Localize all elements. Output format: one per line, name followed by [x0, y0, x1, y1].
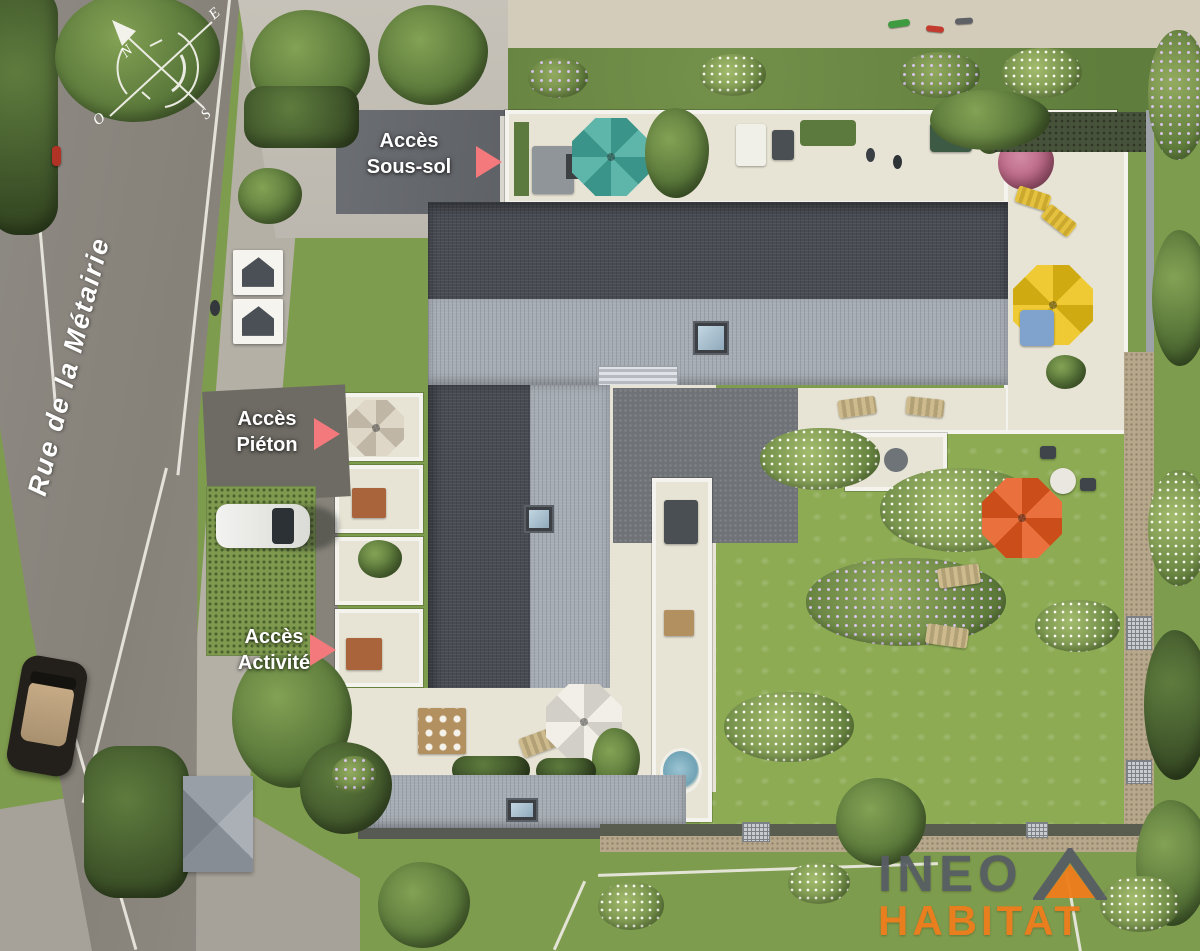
- wood-lounger-2: [905, 396, 945, 418]
- compass-east-label: E: [205, 6, 223, 24]
- garden-chair-1: [1040, 446, 1056, 459]
- road-cyclist: [52, 146, 61, 166]
- access-pedestrian-line2: Piéton: [215, 432, 319, 458]
- purple-bush-south: [332, 756, 376, 794]
- logo-ineo-text: INEO: [878, 851, 1023, 897]
- dark-car-roof: [19, 680, 75, 747]
- white-car-windshield: [272, 508, 294, 544]
- cyclist-gray: [955, 17, 973, 24]
- right-edge-bush-1: [1148, 30, 1200, 160]
- rooftop-planter-2: [800, 120, 856, 146]
- west-terrace-4-set: [346, 638, 382, 670]
- access-basement-line1: Accès: [348, 128, 470, 154]
- roof-skylight-west: [524, 505, 554, 533]
- lawn-flowerbed-4: [724, 692, 854, 762]
- garden-path-2: [553, 881, 586, 951]
- entrance-sign-1: [233, 250, 283, 295]
- south-garden-bush-1: [598, 882, 664, 930]
- roof-skylight-north: [693, 321, 729, 355]
- house-pictogram-icon: [242, 257, 274, 287]
- access-pedestrian-line1: Accès: [215, 406, 319, 432]
- rooftop-person-2: [893, 155, 902, 169]
- right-edge-tree-2: [1144, 630, 1200, 780]
- hanging-chair: [344, 578, 374, 612]
- path-grate-2: [1126, 760, 1152, 784]
- logo-habitat-text: HABITAT: [878, 900, 1198, 942]
- south-garden-bush-2: [788, 862, 850, 904]
- rooftop-seating-group: [736, 124, 766, 166]
- south-tree: [378, 862, 470, 948]
- rooftop-low-table: [772, 130, 794, 160]
- right-edge-bush-2: [1148, 470, 1200, 586]
- west-terrace-2-set: [352, 488, 386, 518]
- tree-top-left-corner: [0, 0, 58, 235]
- garden-table: [1050, 468, 1076, 494]
- developer-logo: INEO HABITAT: [878, 848, 1198, 942]
- rooftop-person: [866, 148, 875, 162]
- access-pedestrian-label: Accès Piéton: [215, 406, 319, 459]
- hedge-upper-left: [244, 86, 359, 148]
- site-plan: N E S O Rue de la Métairie Accès Sous-so…: [0, 0, 1200, 951]
- white-car: [216, 504, 310, 548]
- garden-chair-2: [1080, 478, 1096, 491]
- garden-band-bush-2: [700, 54, 766, 96]
- north-wing-roof-dark: [428, 202, 1008, 299]
- west-wing-roof-light: [530, 385, 616, 700]
- fence-grate-1: [742, 822, 770, 842]
- logo-roof-icon: [1033, 848, 1107, 900]
- garden-band-bush-4: [1002, 48, 1082, 98]
- annex-roof: [183, 776, 253, 872]
- orange-umbrella: [982, 478, 1062, 558]
- house-pictogram-icon: [242, 306, 274, 336]
- rooftop-teal-umbrella: [572, 118, 650, 196]
- west-bed-trees: [84, 746, 189, 898]
- round-table-a: [884, 448, 908, 472]
- roof-skylight-south: [506, 798, 538, 822]
- terrace-b-chairs: [664, 610, 694, 636]
- east-terrace-strip: [798, 388, 1006, 434]
- compass-south-label: S: [198, 106, 215, 123]
- rooftop-planter: [514, 122, 529, 196]
- compass-west-label: O: [92, 110, 109, 128]
- access-basement-line2: Sous-sol: [348, 154, 470, 180]
- compass-rose-icon: N E S O: [92, 6, 232, 128]
- top-footpath: [390, 0, 1200, 52]
- path-grate-1: [1126, 616, 1152, 650]
- access-basement-label: Accès Sous-sol: [348, 128, 470, 181]
- west-wing-roof-dark: [428, 385, 530, 700]
- fence-grate-2: [1026, 822, 1048, 838]
- right-edge-tree-1: [1152, 230, 1200, 366]
- entrance-sign-2: [233, 299, 283, 344]
- garden-band-bush-1: [528, 58, 588, 98]
- compass-north-label: N: [117, 42, 137, 62]
- lawn-flowerbed-1: [760, 428, 880, 490]
- lawn-flowerbed-5: [1035, 600, 1120, 652]
- courtyard-dining-table: [418, 708, 466, 754]
- terrace-b-sofa: [664, 500, 698, 544]
- pedestrian-person: [210, 300, 220, 316]
- blue-table-set: [1020, 310, 1054, 346]
